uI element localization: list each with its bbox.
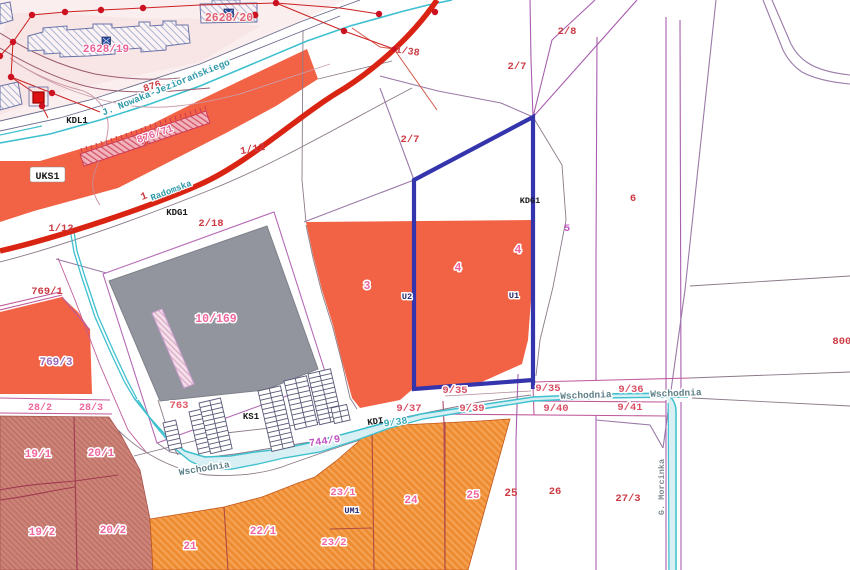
svg-text:U2: U2 (402, 292, 412, 302)
svg-text:9/39: 9/39 (459, 403, 484, 415)
svg-text:9/35: 9/35 (535, 383, 560, 395)
svg-text:2/8: 2/8 (558, 26, 577, 38)
svg-text:20/1: 20/1 (88, 448, 115, 460)
svg-text:6: 6 (630, 193, 636, 205)
svg-text:24: 24 (404, 495, 418, 507)
svg-text:9/36: 9/36 (618, 384, 643, 396)
svg-text:4: 4 (455, 262, 462, 275)
svg-text:28/3: 28/3 (79, 402, 103, 414)
svg-text:763: 763 (170, 400, 189, 412)
svg-text:9/37: 9/37 (396, 403, 421, 415)
svg-text:Wschodnia: Wschodnia (560, 389, 612, 402)
svg-text:769/1: 769/1 (31, 286, 63, 298)
svg-text:28/2: 28/2 (28, 402, 52, 414)
svg-text:23/1: 23/1 (330, 487, 355, 499)
svg-text:19/1: 19/1 (25, 449, 52, 461)
svg-text:27/3: 27/3 (615, 493, 640, 505)
svg-text:10/169: 10/169 (195, 313, 237, 326)
svg-text:1/12: 1/12 (48, 223, 73, 235)
svg-text:U1: U1 (509, 291, 519, 301)
svg-text:2/7: 2/7 (401, 134, 420, 146)
svg-text:5: 5 (564, 223, 570, 235)
svg-text:G. Morcinka: G. Morcinka (657, 459, 667, 515)
svg-text:UM1: UM1 (344, 506, 359, 516)
svg-text:2628/19: 2628/19 (83, 44, 129, 56)
svg-text:2628/20: 2628/20 (205, 12, 253, 25)
svg-text:Wschodnia: Wschodnia (650, 387, 702, 400)
svg-text:9/35: 9/35 (442, 385, 467, 397)
svg-text:UKS1: UKS1 (35, 172, 59, 183)
svg-text:769/3: 769/3 (39, 357, 72, 369)
svg-text:25: 25 (504, 488, 518, 500)
svg-text:21: 21 (183, 541, 197, 553)
svg-text:2/7: 2/7 (508, 61, 527, 73)
svg-text:19/2: 19/2 (29, 527, 55, 539)
svg-text:2/18: 2/18 (198, 218, 223, 230)
svg-text:22/1: 22/1 (250, 526, 277, 538)
svg-text:KDG1: KDG1 (166, 208, 188, 218)
svg-text:KS1: KS1 (243, 412, 260, 422)
svg-text:20/2: 20/2 (100, 525, 126, 537)
svg-text:9/41: 9/41 (617, 402, 642, 414)
svg-text:800/: 800/ (832, 336, 850, 348)
svg-text:KDG1: KDG1 (520, 196, 540, 206)
svg-text:KDL1: KDL1 (66, 116, 88, 126)
svg-text:3: 3 (364, 280, 371, 293)
svg-text:26: 26 (549, 486, 562, 498)
svg-text:9/40: 9/40 (543, 403, 568, 415)
svg-text:4: 4 (515, 244, 522, 257)
svg-text:23/2: 23/2 (321, 537, 346, 549)
svg-text:25: 25 (466, 490, 480, 502)
